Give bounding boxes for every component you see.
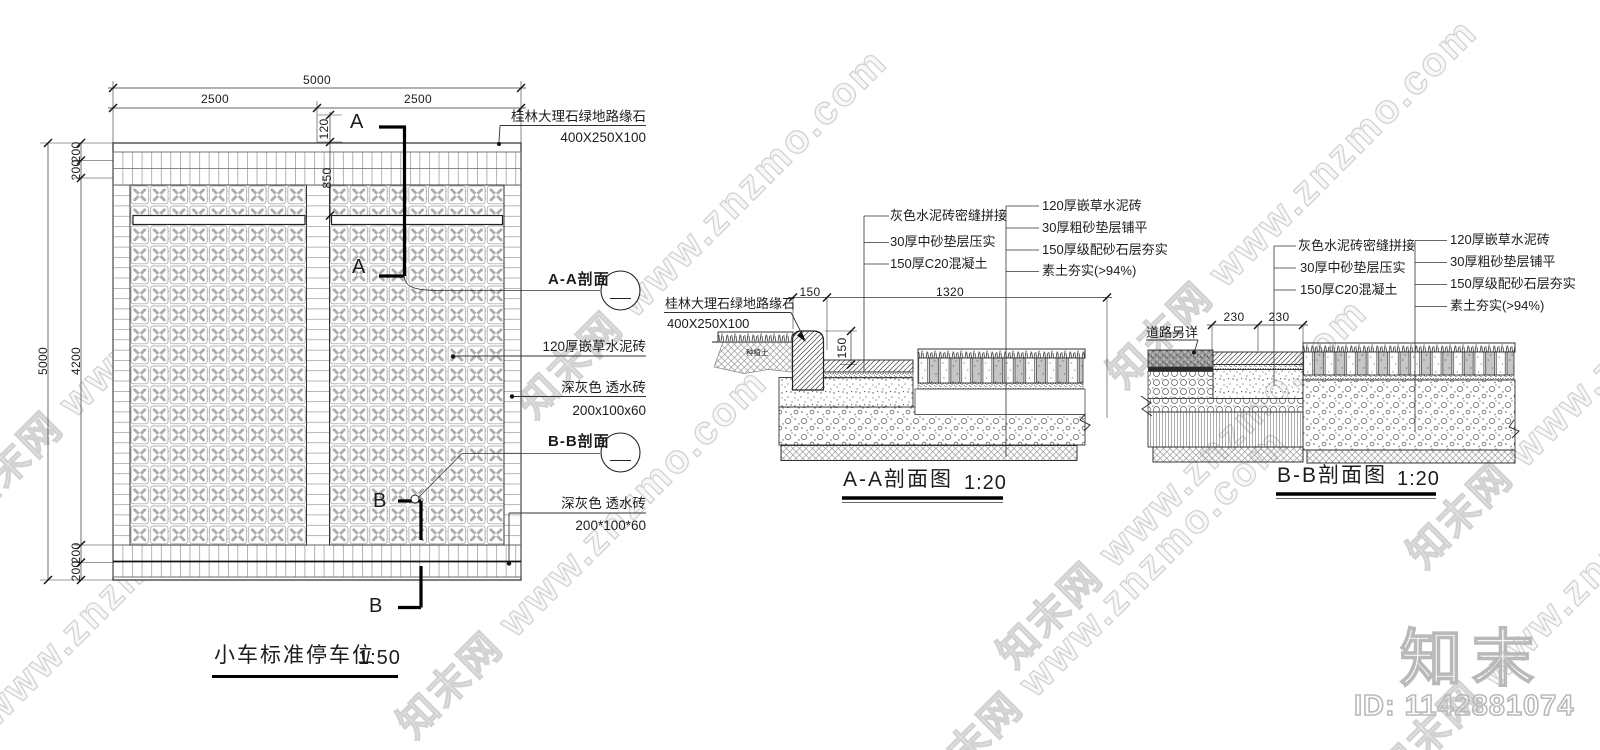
plan-scale: 1:50 bbox=[358, 648, 401, 668]
callout-section-aa: A-A剖面 bbox=[548, 272, 610, 287]
aa-layer-right-1: 120厚嵌草水泥砖 bbox=[1042, 199, 1142, 212]
dim-edge-200: 200 bbox=[70, 160, 82, 181]
dim-total-width: 5000 bbox=[303, 74, 331, 86]
aa-curb-size: 400X250X100 bbox=[667, 317, 749, 330]
section-letter-b-top: B bbox=[373, 491, 386, 511]
dim-total-height: 5000 bbox=[37, 347, 49, 375]
dim-inner-height: 4200 bbox=[70, 347, 82, 375]
aa-soil-note: 种植土 bbox=[746, 349, 769, 357]
aa-scale: 1:20 bbox=[964, 473, 1007, 493]
dim-half-right: 2500 bbox=[404, 93, 432, 105]
image-id: ID: 1142881074 bbox=[1354, 690, 1574, 723]
callout-curb-size: 400X250X100 bbox=[446, 131, 646, 145]
bb-road-note: 道路另详 bbox=[1146, 326, 1198, 339]
section-bb-dimensions bbox=[1207, 321, 1308, 351]
curb-stone bbox=[793, 331, 824, 390]
wheel-stop-left bbox=[133, 216, 305, 225]
dim-offset-120: 120 bbox=[318, 119, 330, 140]
aa-dim-150v: 150 bbox=[836, 338, 848, 359]
aa-layer-right-4: 素土夯实(>94%) bbox=[1042, 264, 1136, 277]
callout-perm-paver-2-size: 200*100*60 bbox=[446, 519, 646, 533]
bb-layer-left-3: 150厚C20混凝土 bbox=[1300, 283, 1398, 296]
callout-perm-paver-1-size: 200x100x60 bbox=[446, 404, 646, 418]
bb-scale: 1:20 bbox=[1397, 469, 1440, 489]
aa-layer-right-2: 30厚粗砂垫层铺平 bbox=[1042, 221, 1147, 234]
plan-title: 小车标准停车位 bbox=[214, 645, 375, 666]
callout-perm-paver-1: 深灰色 透水砖 bbox=[446, 381, 646, 395]
bb-layer-right-4: 素土夯实(>94%) bbox=[1450, 299, 1544, 312]
dim-offset-850: 850 bbox=[321, 168, 333, 189]
drawing-canvas bbox=[0, 0, 1600, 750]
bb-layer-right-3: 150厚级配砂石层夯实 bbox=[1450, 277, 1576, 290]
aa-dim-1320: 1320 bbox=[936, 286, 964, 298]
dim-edge-200: 200 bbox=[70, 561, 82, 582]
callout-perm-paver-2: 深灰色 透水砖 bbox=[446, 497, 646, 511]
aa-title: A-A剖面图 bbox=[843, 469, 953, 490]
section-letter-a-bottom: A bbox=[352, 257, 365, 277]
bb-layer-left-2: 30厚中砂垫层压实 bbox=[1300, 261, 1405, 274]
site-logo: 知末 bbox=[1400, 608, 1544, 698]
wheel-stop-right bbox=[332, 216, 503, 225]
aa-layer-left-1: 灰色水泥砖密缝拼接 bbox=[890, 209, 1007, 222]
dim-half-left: 2500 bbox=[201, 93, 229, 105]
bb-dim-230-right: 230 bbox=[1269, 311, 1290, 323]
bb-layer-right-2: 30厚粗砂垫层铺平 bbox=[1450, 255, 1555, 268]
aa-layer-left-2: 30厚中砂垫层压实 bbox=[890, 235, 995, 248]
aa-layer-left-3: 150厚C20混凝土 bbox=[890, 257, 988, 270]
bb-layer-right-1: 120厚嵌草水泥砖 bbox=[1450, 233, 1550, 246]
aa-curb-name: 桂林大理石绿地路缘石 bbox=[665, 297, 795, 310]
callout-grass-paver: 120厚嵌草水泥砖 bbox=[446, 340, 646, 354]
section-letter-a-top: A bbox=[350, 112, 363, 132]
bb-dim-230-left: 230 bbox=[1224, 311, 1245, 323]
cad-drawing-sheet: 知末网 www.znzmo.com 知末网 www.znzmo.com 知末网 … bbox=[0, 0, 1600, 750]
bb-layer-left-1: 灰色水泥砖密缝拼接 bbox=[1298, 239, 1415, 252]
section-letter-b-bottom: B bbox=[369, 596, 382, 616]
bb-title: B-B剖面图 bbox=[1277, 465, 1387, 486]
plan-view bbox=[40, 81, 646, 677]
callout-section-bb: B-B剖面 bbox=[548, 434, 610, 449]
aa-dim-150: 150 bbox=[800, 286, 821, 298]
callout-curb-name: 桂林大理石绿地路缘石 bbox=[446, 110, 646, 124]
aa-layer-right-3: 150厚级配砂石层夯实 bbox=[1042, 243, 1168, 256]
